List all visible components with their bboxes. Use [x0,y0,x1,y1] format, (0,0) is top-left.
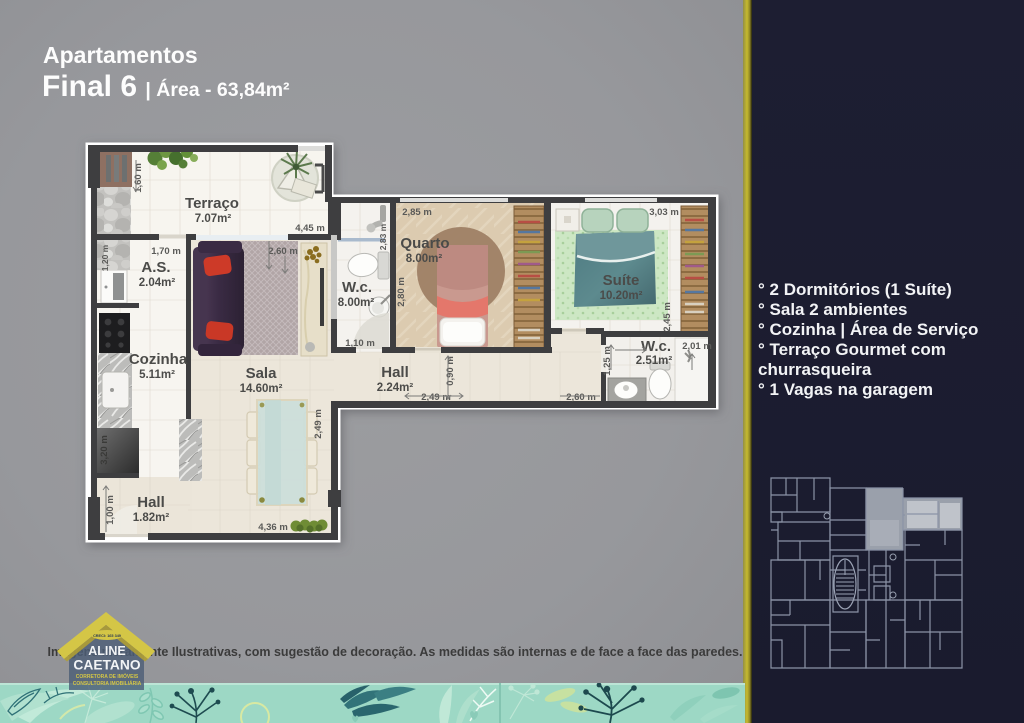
svg-text:3,03 m: 3,03 m [649,207,679,218]
svg-text:2,49 m: 2,49 m [313,409,324,439]
svg-text:Suíte: Suíte [603,272,640,289]
svg-text:2,01 m: 2,01 m [682,341,712,352]
svg-text:1.82m²: 1.82m² [133,512,170,524]
svg-text:Terraço: Terraço [185,195,239,212]
svg-text:0,90 m: 0,90 m [445,356,456,386]
svg-text:4,36 m: 4,36 m [258,522,288,533]
svg-text:W.c.: W.c. [641,338,671,355]
svg-text:W.c.: W.c. [342,279,372,296]
svg-text:1,20 m: 1,20 m [100,244,110,271]
svg-text:Sala: Sala [246,365,278,382]
svg-text:2,60 m: 2,60 m [268,246,298,257]
svg-text:2,83 m: 2,83 m [378,223,388,250]
svg-text:Hall: Hall [381,364,409,381]
svg-text:Hall: Hall [137,494,165,511]
svg-text:2.51m²: 2.51m² [636,355,673,367]
svg-text:2,80 m: 2,80 m [396,277,407,307]
svg-text:1,70 m: 1,70 m [151,246,181,257]
svg-text:14.60m²: 14.60m² [240,383,283,395]
svg-text:3,20 m: 3,20 m [99,435,110,465]
svg-text:Cozinha: Cozinha [129,351,188,368]
svg-text:2,60 m: 2,60 m [566,392,596,403]
svg-text:2,45 m: 2,45 m [662,302,673,332]
svg-text:1,10 m: 1,10 m [345,338,375,349]
svg-text:4,45 m: 4,45 m [295,223,325,234]
svg-text:8.00m²: 8.00m² [338,297,375,309]
svg-text:5.11m²: 5.11m² [139,369,175,381]
svg-text:2,85 m: 2,85 m [402,207,432,218]
svg-text:2.24m²: 2.24m² [377,382,414,394]
svg-text:10.20m²: 10.20m² [600,290,643,302]
svg-text:Quarto: Quarto [400,235,449,252]
svg-text:7.07m²: 7.07m² [195,213,232,225]
svg-text:2.04m²: 2.04m² [139,277,176,289]
svg-text:A.S.: A.S. [141,259,170,276]
svg-text:8.00m²: 8.00m² [406,253,443,265]
svg-text:1,00 m: 1,00 m [105,495,116,525]
